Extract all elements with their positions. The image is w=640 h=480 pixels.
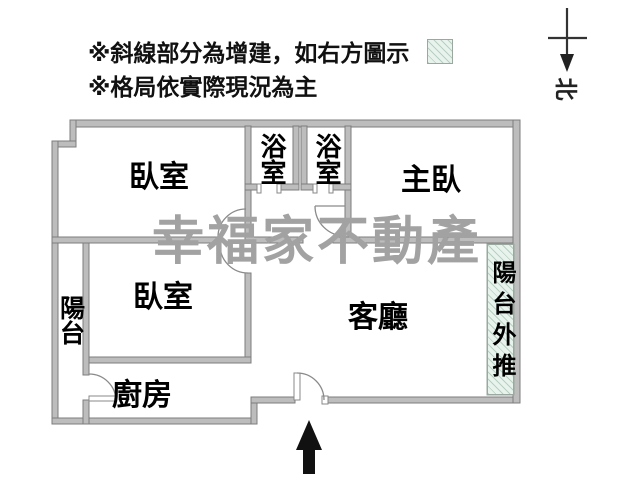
floorplan-page: { "header": { "note1": "※斜線部分為增建，如右方圖示",… [0, 0, 640, 480]
balcony-extension-hatch [487, 244, 514, 395]
agency-watermark: 幸福家不動產 [152, 216, 482, 268]
entrance-arrow-icon [296, 420, 322, 474]
north-compass-icon [0, 0, 640, 110]
